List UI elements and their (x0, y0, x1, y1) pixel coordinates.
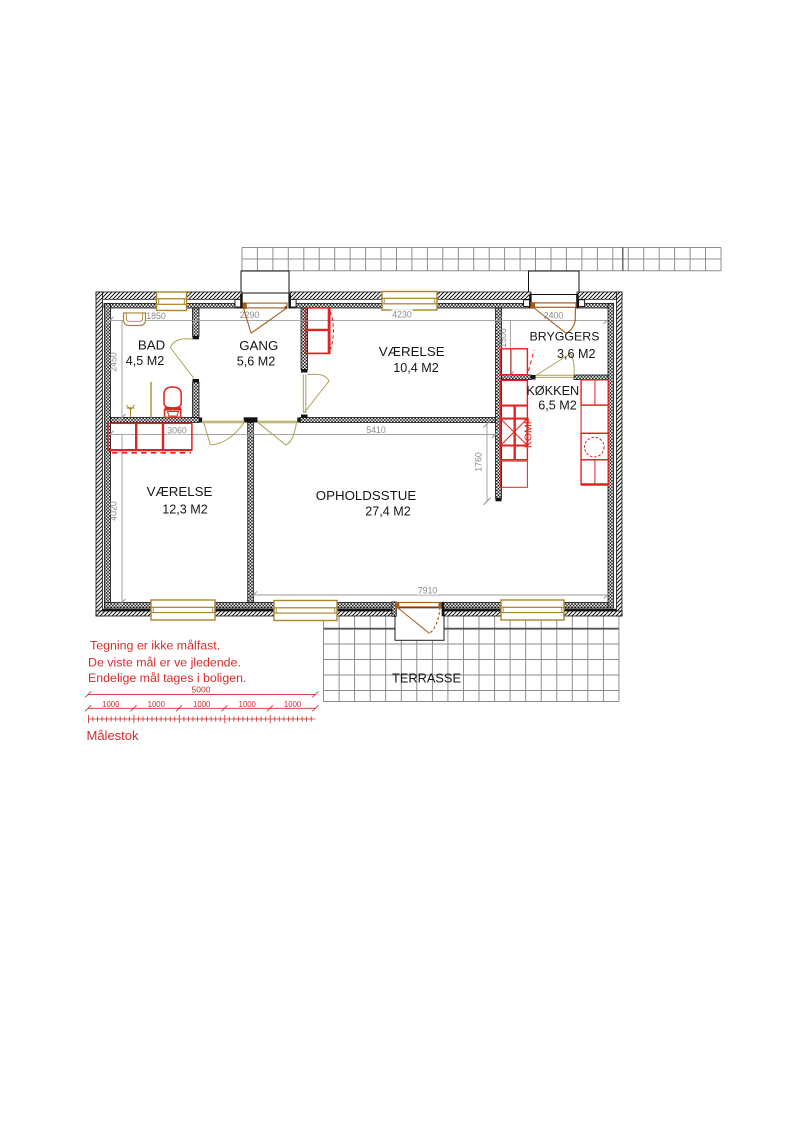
svg-text:4020: 4020 (109, 501, 119, 521)
svg-text:1850: 1850 (146, 311, 166, 321)
svg-text:1000: 1000 (284, 700, 302, 709)
svg-text:5410: 5410 (366, 425, 386, 435)
svg-text:2400: 2400 (544, 311, 564, 321)
svg-text:10,4 M2: 10,4 M2 (393, 361, 439, 375)
svg-text:1000: 1000 (239, 700, 257, 709)
svg-text:Endelige mål tages i boligen.: Endelige mål tages i boligen. (88, 671, 246, 685)
svg-text:Målestok: Målestok (87, 728, 140, 743)
svg-text:4,5 M2: 4,5 M2 (126, 354, 165, 368)
svg-text:2290: 2290 (240, 310, 260, 320)
svg-text:1760: 1760 (474, 452, 484, 472)
svg-text:1000: 1000 (102, 700, 120, 709)
svg-text:KOMF: KOMF (523, 418, 535, 448)
svg-text:7910: 7910 (418, 586, 438, 596)
svg-text:3,6 M2: 3,6 M2 (557, 347, 596, 361)
svg-text:OPHOLDSSTUE: OPHOLDSSTUE (316, 488, 417, 503)
svg-text:3060: 3060 (167, 425, 187, 435)
svg-text:Tegning er ikke målfast.: Tegning er ikke målfast. (90, 639, 220, 653)
svg-text:5,6 M2: 5,6 M2 (237, 355, 276, 369)
svg-text:1500: 1500 (498, 328, 508, 348)
svg-text:12,3 M2: 12,3 M2 (162, 503, 208, 517)
svg-text:TERRASSE: TERRASSE (392, 671, 461, 686)
svg-text:BRYGGERS: BRYGGERS (529, 330, 599, 344)
svg-text:2450: 2450 (109, 352, 119, 372)
svg-text:5000: 5000 (192, 684, 211, 694)
svg-text:1000: 1000 (193, 700, 211, 709)
svg-text:6,5 M2: 6,5 M2 (538, 399, 577, 413)
svg-text:De viste mål er ve jledende.: De viste mål er ve jledende. (88, 656, 241, 670)
svg-text:VÆRELSE: VÆRELSE (379, 344, 445, 359)
svg-text:VÆRELSE: VÆRELSE (147, 484, 213, 499)
svg-text:KØKKEN: KØKKEN (526, 384, 579, 398)
svg-text:BAD: BAD (138, 338, 165, 353)
svg-text:4230: 4230 (392, 310, 412, 320)
svg-text:GANG: GANG (239, 338, 278, 353)
svg-text:1000: 1000 (148, 700, 166, 709)
svg-text:27,4 M2: 27,4 M2 (365, 505, 411, 519)
